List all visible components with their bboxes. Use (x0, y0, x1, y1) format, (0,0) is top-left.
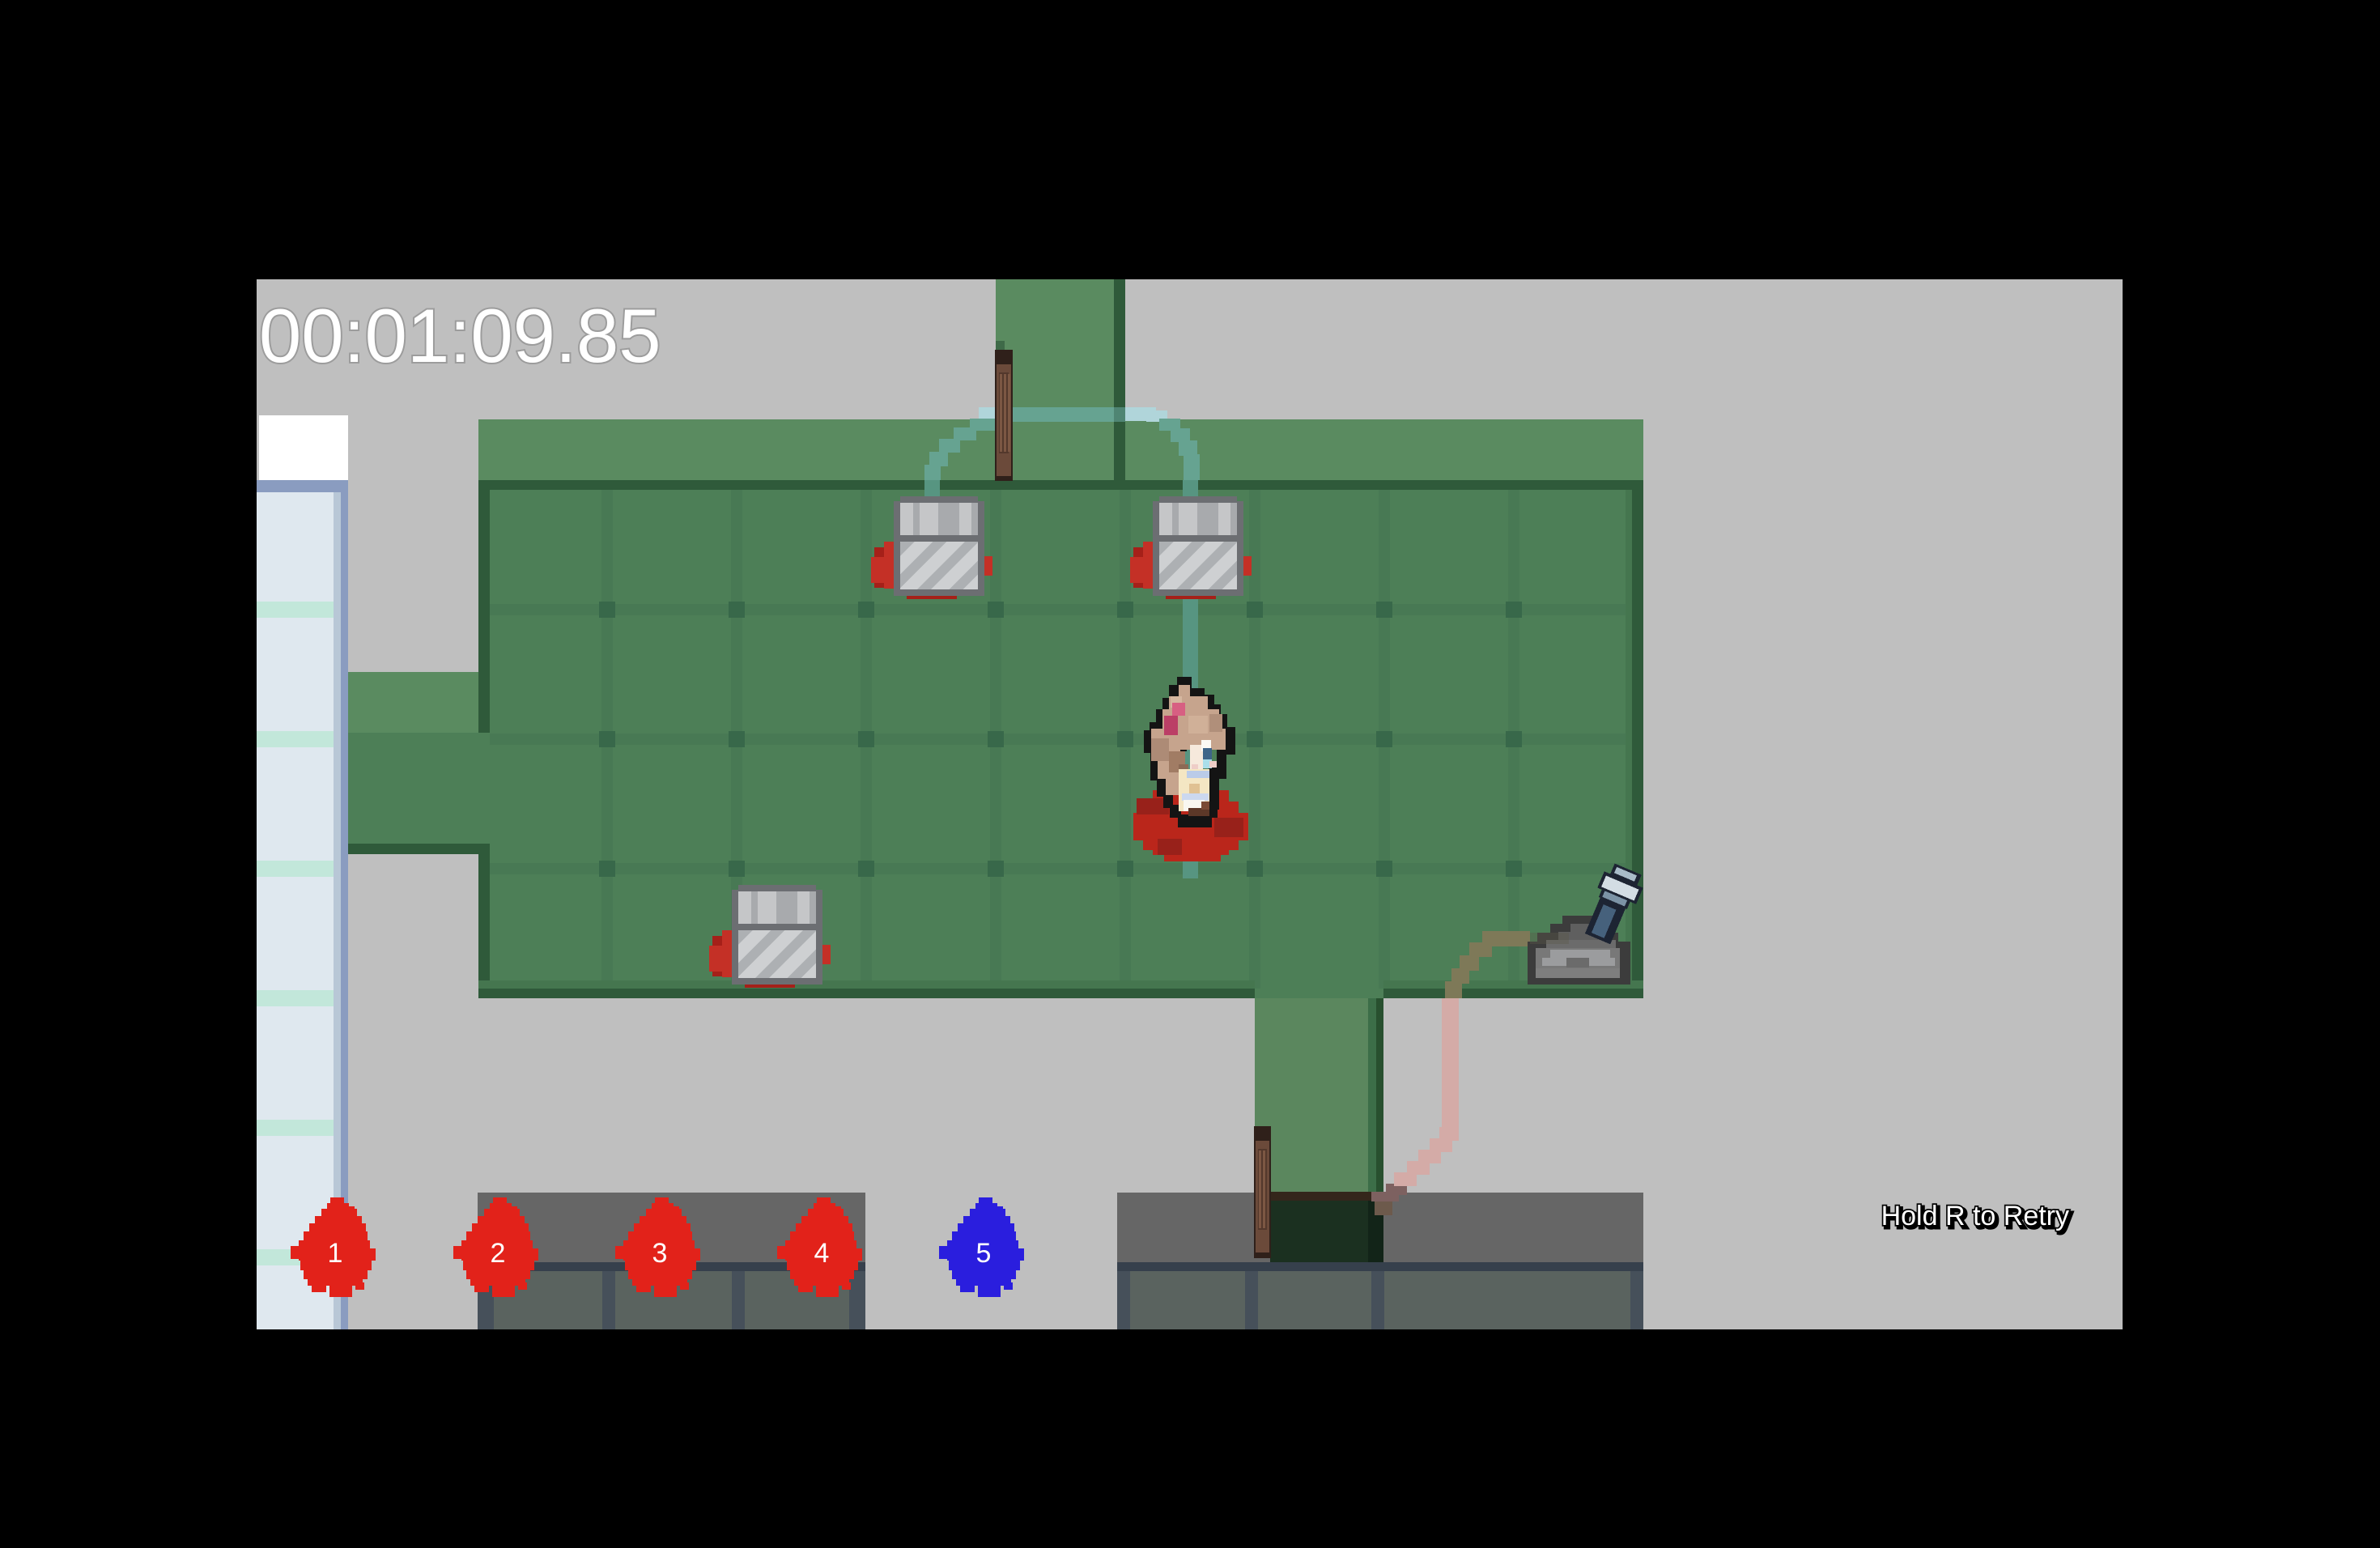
svg-text:1: 1 (328, 1238, 343, 1269)
svg-text:5: 5 (976, 1238, 992, 1269)
svg-text:3: 3 (652, 1238, 668, 1269)
svg-text:4: 4 (814, 1238, 830, 1269)
svg-text:2: 2 (491, 1238, 506, 1269)
svg-text:Hold R to Retry: Hold R to Retry (1881, 1201, 2069, 1231)
svg-text:00:01:09.85: 00:01:09.85 (259, 293, 661, 378)
